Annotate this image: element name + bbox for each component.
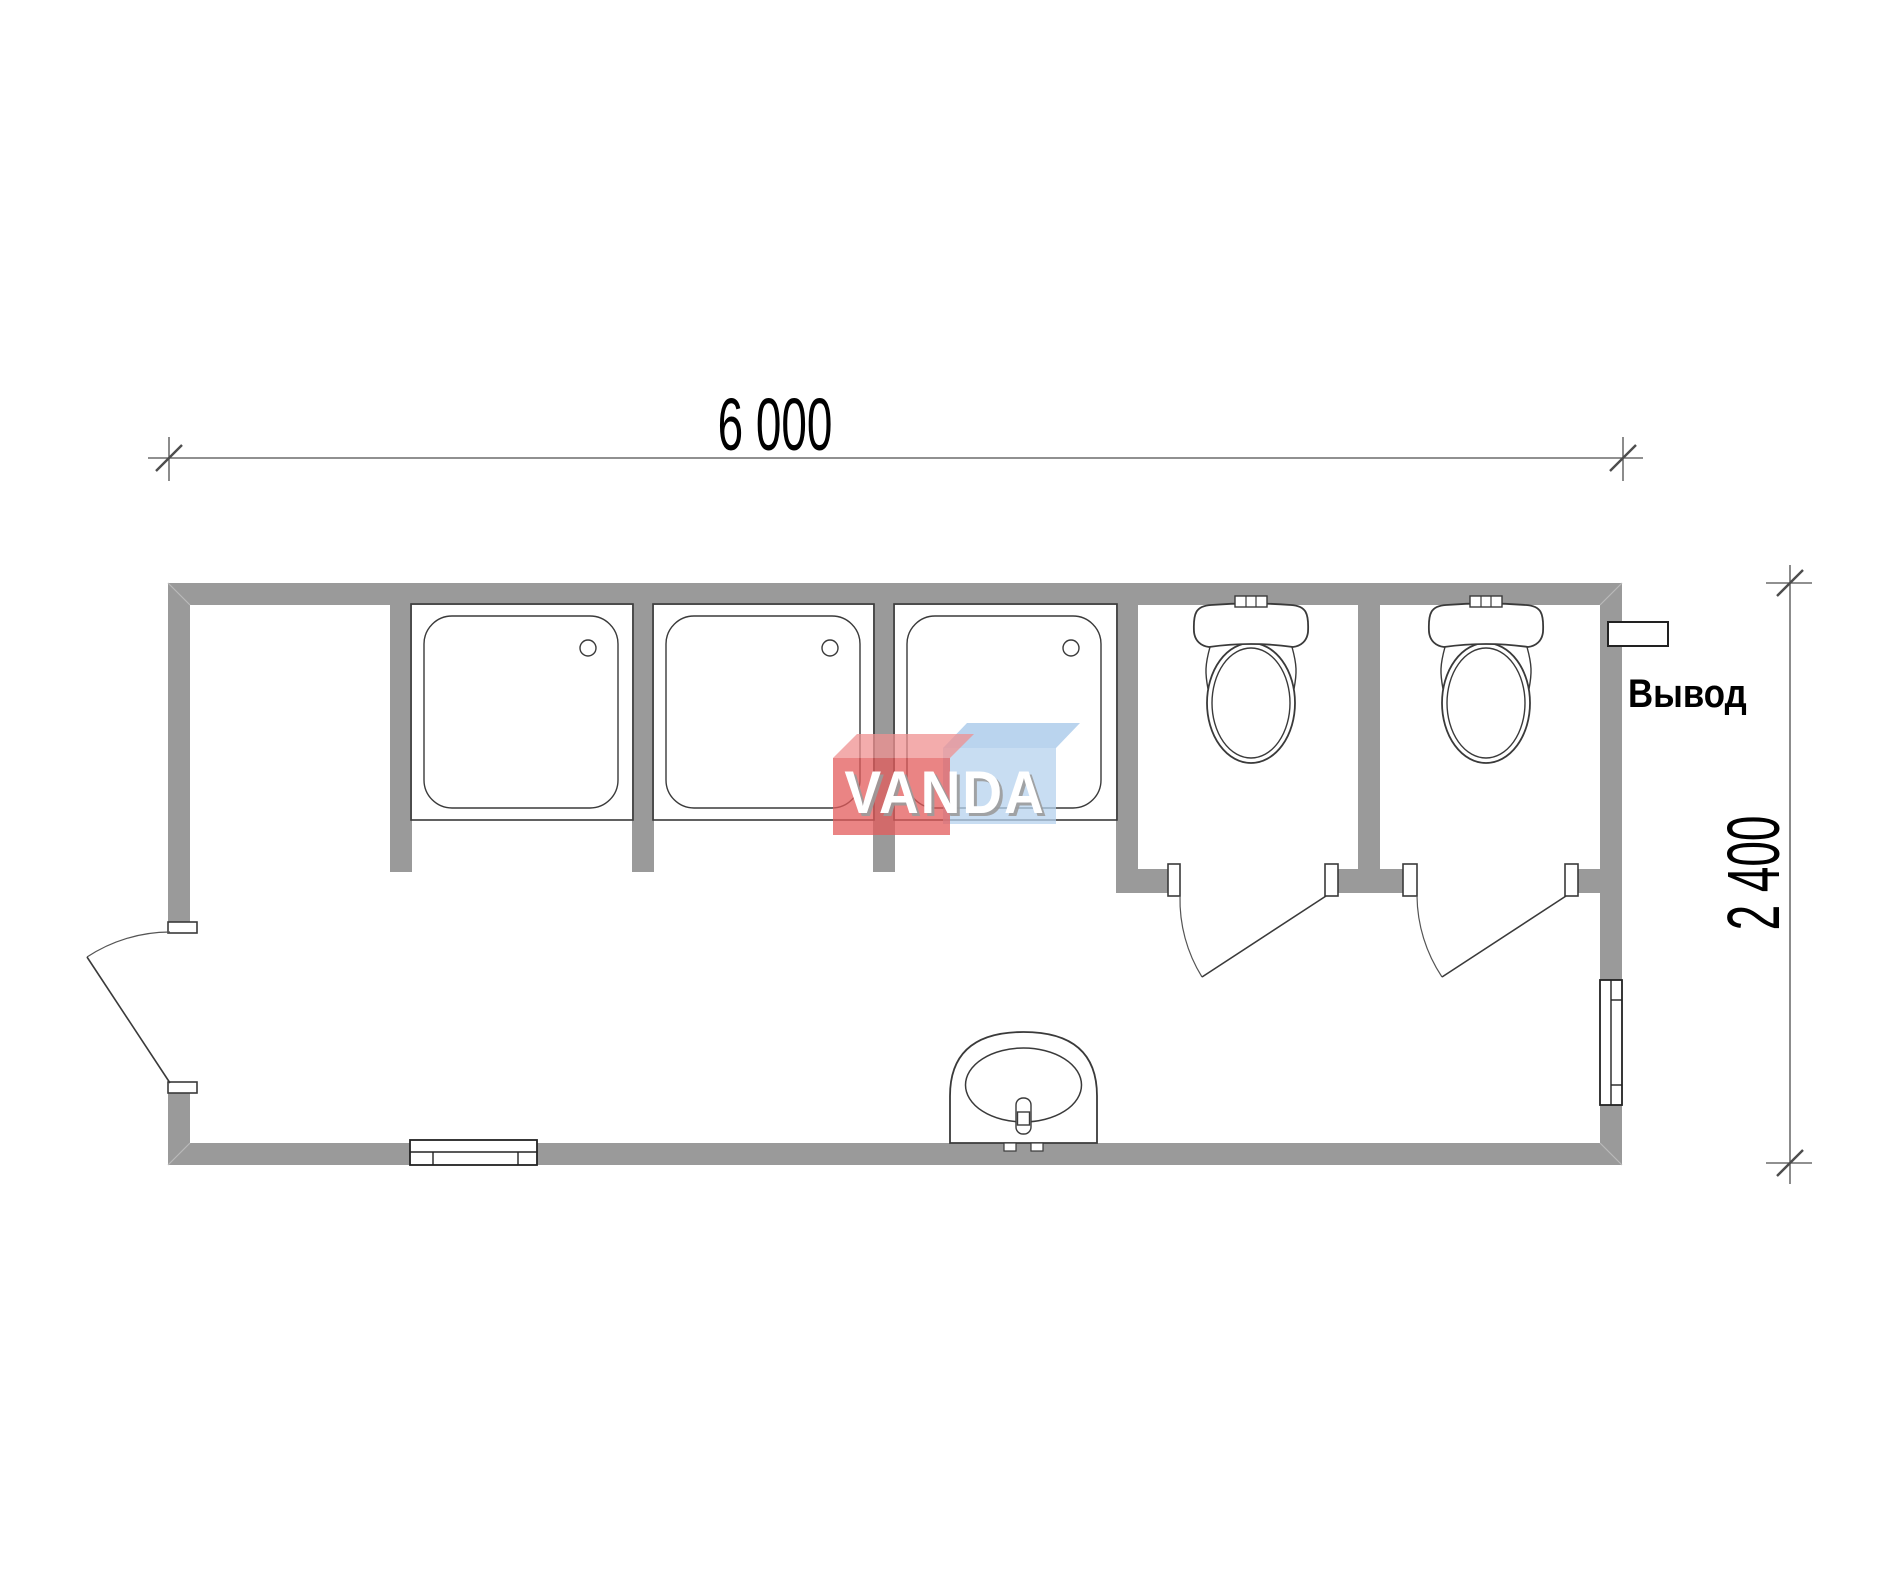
toilet-tank — [1194, 604, 1308, 648]
watermark-text: VANDA — [844, 760, 1045, 827]
outer-wall-right-lower — [1600, 1105, 1622, 1165]
wc2-door — [1403, 864, 1578, 977]
entrance-door — [87, 922, 197, 1093]
toilet-flush-buttons — [1235, 596, 1267, 607]
door-jamb — [1565, 864, 1578, 896]
outlet-label: Вывод — [1628, 671, 1747, 716]
door-jamb — [168, 922, 197, 933]
door-jamb — [168, 1082, 197, 1093]
shower-drain-icon — [580, 640, 596, 656]
partition-shower1-shower2 — [632, 605, 654, 872]
wc1-front-wall-stub — [1138, 869, 1168, 893]
dimension-height: 2 400 — [1713, 565, 1812, 1184]
toilet-bowl-outer — [1207, 643, 1295, 763]
outer-wall-top — [168, 583, 1622, 605]
door-swing-arc — [87, 932, 170, 957]
floor-plan-drawing: Вывод VANDA VANDA 6 000 2 400 — [0, 0, 1899, 1571]
partition-wc1-wc2 — [1358, 605, 1380, 893]
toilet-1 — [1194, 596, 1308, 763]
door-leaf — [87, 957, 170, 1083]
partition-hall-shower1 — [390, 605, 412, 872]
outer-wall-left-upper — [168, 583, 190, 922]
sink-wall-anchor — [1004, 1143, 1016, 1151]
wc1-wc2-front-wall-stub — [1338, 869, 1403, 893]
toilet-flush-buttons — [1470, 596, 1502, 607]
door-leaf — [1442, 896, 1566, 977]
outlet-box — [1608, 622, 1668, 646]
wc1-door — [1168, 864, 1338, 977]
toilet-bowl-outer — [1442, 643, 1530, 763]
shower-drain-icon — [1063, 640, 1079, 656]
toilet-2 — [1429, 596, 1543, 763]
wc2-front-wall-stub — [1578, 869, 1600, 893]
dimension-width: 6 000 — [148, 384, 1643, 481]
watermark-red-box-top — [833, 734, 974, 758]
dimension-width-label: 6 000 — [718, 384, 833, 467]
door-swing-arc — [1180, 896, 1202, 977]
sink — [950, 1032, 1097, 1151]
outlet-marker: Вывод — [1608, 622, 1747, 716]
outer-wall-bottom-left — [168, 1143, 410, 1165]
dimension-height-label: 2 400 — [1713, 816, 1796, 931]
shower-stall-1 — [411, 604, 633, 820]
partition-shower3-wc1 — [1116, 605, 1138, 893]
window-right-wall — [1600, 980, 1622, 1105]
shower-drain-icon — [822, 640, 838, 656]
toilet-tank — [1429, 604, 1543, 648]
door-jamb — [1403, 864, 1417, 896]
door-jamb — [1325, 864, 1338, 896]
vanda-watermark: VANDA VANDA — [833, 723, 1080, 835]
sink-faucet-base — [1018, 1112, 1030, 1125]
outer-wall-bottom-right — [537, 1143, 1622, 1165]
sink-wall-anchor — [1031, 1143, 1043, 1151]
door-leaf — [1202, 896, 1326, 977]
door-jamb — [1168, 864, 1180, 896]
door-swing-arc — [1417, 896, 1442, 977]
window-bottom-wall — [410, 1140, 537, 1165]
